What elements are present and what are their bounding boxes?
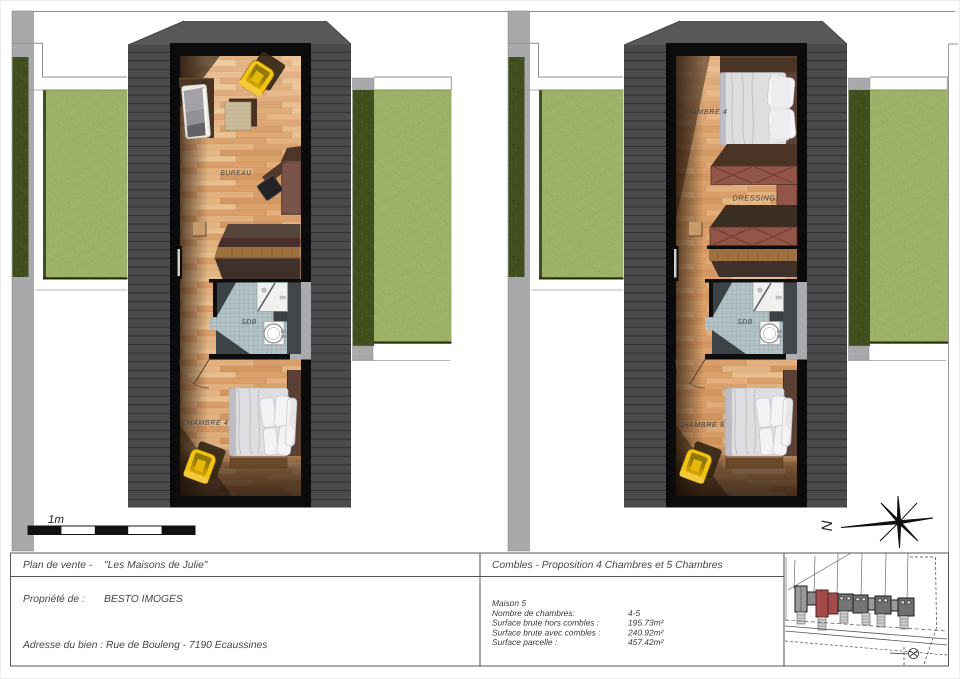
svg-text:BESTO IMOGES: BESTO IMOGES xyxy=(104,594,183,605)
svg-text:"Les Maisons de Julie": "Les Maisons de Julie" xyxy=(104,560,209,571)
svg-text:BUREAU: BUREAU xyxy=(220,170,251,177)
svg-text:Plan de vente -: Plan de vente - xyxy=(23,560,93,571)
svg-text:1m: 1m xyxy=(48,514,64,526)
svg-text:CHAMBRE 5: CHAMBRE 5 xyxy=(678,420,725,429)
svg-text:195.73m²: 195.73m² xyxy=(628,618,665,628)
svg-text:SDB: SDB xyxy=(241,319,257,326)
svg-text:Nombre de chambres:: Nombre de chambres: xyxy=(492,608,575,618)
svg-text:240.92m²: 240.92m² xyxy=(627,628,665,638)
svg-text:4-5: 4-5 xyxy=(628,608,640,618)
svg-text:Combles - Proposition 4 Chambr: Combles - Proposition 4 Chambres et 5 Ch… xyxy=(492,560,723,571)
svg-text:N: N xyxy=(819,520,836,531)
svg-text:DRESSING: DRESSING xyxy=(732,194,775,203)
svg-text:457.42m²: 457.42m² xyxy=(628,637,665,647)
svg-text:SDB: SDB xyxy=(737,319,753,326)
svg-text:Adresse du bien : Rue de Boule: Adresse du bien : Rue de Bouleng - 7190 … xyxy=(22,640,267,651)
svg-text:Surface brute avec combles :: Surface brute avec combles : xyxy=(492,628,600,638)
svg-text:CHAMBRE 4: CHAMBRE 4 xyxy=(681,107,728,116)
svg-text:Surface parcelle :: Surface parcelle : xyxy=(492,637,557,647)
svg-text:Surface brute hors combles :: Surface brute hors combles : xyxy=(492,618,599,628)
svg-text:Maison 5: Maison 5 xyxy=(492,598,526,608)
svg-text:Propriété de :: Propriété de : xyxy=(23,594,85,605)
svg-text:CHAMBRE 4: CHAMBRE 4 xyxy=(182,418,229,427)
